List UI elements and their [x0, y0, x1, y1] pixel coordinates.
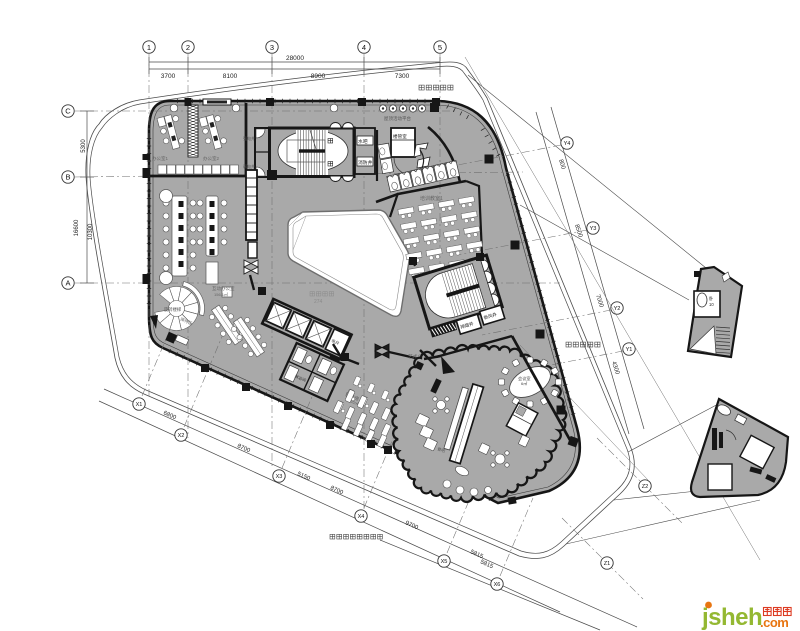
svg-text:16600: 16600: [74, 219, 80, 236]
svg-text:办公室2: 办公室2: [203, 155, 219, 162]
svg-text:5300: 5300: [81, 139, 87, 153]
svg-text:274: 274: [314, 299, 323, 305]
svg-text:7000: 7000: [594, 294, 604, 309]
svg-text:旋转楼梯: 旋转楼梯: [164, 306, 182, 313]
svg-text:10: 10: [709, 302, 714, 307]
svg-text:X4: X4: [358, 514, 365, 520]
svg-text:A: A: [65, 279, 70, 288]
svg-text:8700: 8700: [236, 443, 251, 454]
svg-text:培训教室1: 培训教室1: [420, 195, 443, 202]
svg-text:Y4: Y4: [564, 141, 571, 147]
svg-text:Y1: Y1: [626, 347, 633, 353]
svg-text:X3: X3: [276, 474, 283, 480]
svg-text:Y3: Y3: [590, 226, 597, 232]
svg-text:屋顶活动平台: 屋顶活动平台: [384, 115, 411, 122]
svg-text:卧: 卧: [709, 295, 713, 302]
svg-text:楼管室: 楼管室: [393, 133, 407, 140]
svg-text:10300: 10300: [88, 223, 94, 240]
svg-text:5: 5: [438, 43, 442, 52]
svg-text:X2: X2: [178, 433, 185, 439]
svg-text:8700: 8700: [329, 485, 344, 496]
svg-text:C: C: [65, 107, 71, 116]
svg-text:B: B: [65, 173, 70, 182]
svg-text:9700: 9700: [404, 520, 419, 531]
svg-text:弱电井: 弱电井: [243, 163, 255, 169]
svg-text:5815: 5815: [479, 559, 494, 570]
svg-text:办公室1: 办公室1: [152, 155, 168, 162]
svg-text:4: 4: [362, 43, 366, 52]
svg-text:6㎡: 6㎡: [521, 380, 527, 386]
svg-text:8500: 8500: [573, 224, 583, 239]
svg-text:8900: 8900: [311, 73, 326, 80]
svg-text:水吧: 水吧: [358, 138, 368, 145]
svg-text:强电井: 强电井: [243, 135, 255, 141]
svg-text:消防井: 消防井: [358, 159, 373, 166]
svg-text:2: 2: [186, 43, 190, 52]
svg-text:800: 800: [557, 159, 566, 171]
svg-text:X1: X1: [136, 402, 143, 408]
svg-text:X6: X6: [494, 582, 501, 588]
svg-text:Z2: Z2: [642, 484, 649, 490]
svg-text:7300: 7300: [395, 73, 410, 80]
svg-text:X5: X5: [441, 559, 448, 565]
svg-text:Z1: Z1: [604, 561, 611, 567]
svg-text:.com: .com: [760, 615, 788, 630]
svg-text:3700: 3700: [161, 73, 176, 80]
svg-text:8100: 8100: [223, 73, 238, 80]
svg-text:28000: 28000: [286, 55, 304, 62]
svg-text:6800: 6800: [162, 410, 177, 421]
svg-text:3: 3: [270, 43, 274, 52]
svg-text:Y2: Y2: [614, 306, 621, 312]
svg-text:1: 1: [147, 43, 151, 52]
svg-text:156.1㎡: 156.1㎡: [214, 291, 228, 297]
svg-text:互动办公室: 互动办公室: [212, 285, 235, 292]
svg-text:jsheh: jsheh: [701, 604, 762, 631]
